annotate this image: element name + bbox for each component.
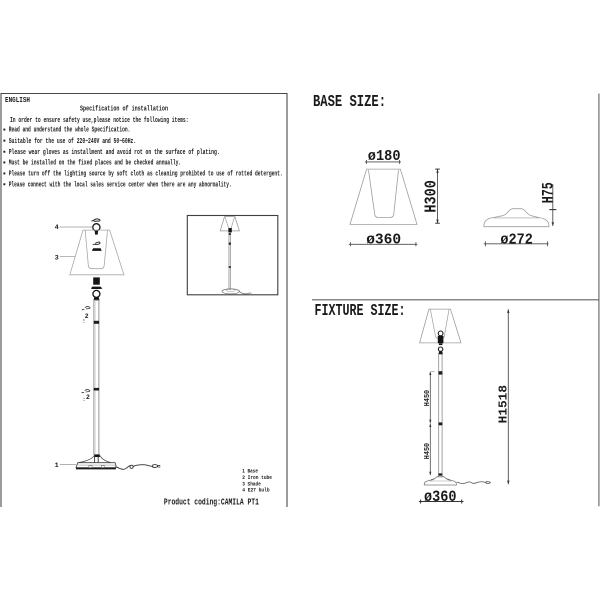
svg-text:Product coding:CAMILA PT1: Product coding:CAMILA PT1 — [164, 496, 259, 507]
svg-text:Specification of installation: Specification of installation — [80, 106, 168, 114]
svg-text:4: 4 — [55, 224, 59, 232]
svg-text:H450: H450 — [424, 443, 432, 459]
svg-text:ø180: ø180 — [368, 149, 401, 165]
svg-text:2: 2 — [85, 313, 89, 320]
svg-text:4 E27 bulb: 4 E27 bulb — [242, 487, 270, 494]
svg-text:2: 2 — [86, 394, 90, 401]
svg-text:H75: H75 — [540, 182, 558, 203]
svg-text:Please wear gloves as installm: Please wear gloves as installment and av… — [9, 149, 220, 157]
svg-text:H1518: H1518 — [497, 385, 511, 423]
svg-text:Must be installed on the fixed: Must be installed on the fixed places an… — [9, 160, 182, 168]
svg-text:ø360: ø360 — [424, 488, 457, 506]
svg-text:H300: H300 — [423, 180, 441, 212]
svg-text:ENGLISH: ENGLISH — [5, 97, 30, 105]
svg-text:H450: H450 — [424, 390, 432, 406]
svg-text:Please connect with the local: Please connect with the local sales serv… — [9, 181, 232, 189]
svg-text:BASE SIZE:: BASE SIZE: — [313, 92, 386, 111]
svg-text:3: 3 — [55, 254, 59, 262]
svg-text:Please turn off the lighting s: Please turn off the lighting source by s… — [9, 171, 283, 179]
svg-text:FIXTURE SIZE:: FIXTURE SIZE: — [315, 301, 406, 320]
svg-text:ø272: ø272 — [500, 231, 533, 249]
svg-text:Read and understand the whole: Read and understand the whole Specificat… — [9, 127, 131, 135]
svg-text:1: 1 — [55, 462, 59, 470]
svg-text:In order to ensure safety use,: In order to ensure safety use,please not… — [10, 117, 189, 125]
svg-text:Suitable for the use of 220~24: Suitable for the use of 220~240V and 50~… — [9, 138, 137, 146]
svg-text:ø360: ø360 — [366, 230, 401, 248]
